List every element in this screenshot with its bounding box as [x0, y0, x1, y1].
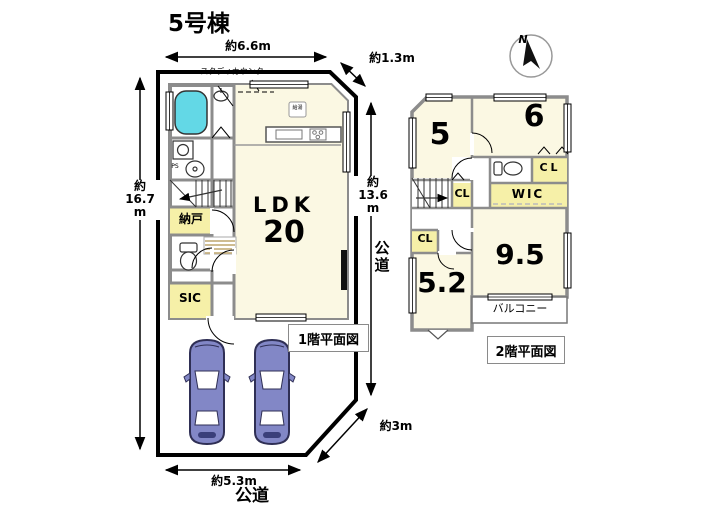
wic-label: WIC [502, 188, 554, 201]
washing-machine-icon [173, 141, 193, 159]
dim-left-label: 約 16.7 m [118, 180, 162, 220]
water-heater-label: 給湯 [289, 106, 306, 112]
study-counter-label: スタディカウンター [198, 68, 274, 77]
road-right-label: 公 道 [368, 240, 396, 273]
cl-a-label: CL [534, 162, 566, 174]
car-2 [249, 340, 295, 444]
floor1-plan-label: 1階平面図 [288, 324, 369, 352]
room95-label: 9.5 [490, 240, 550, 271]
ldk-name-label: LDK [248, 194, 320, 217]
vanity-icon [186, 161, 204, 177]
cl-c-label: CL [412, 233, 438, 245]
toilet-2f-icon [494, 162, 522, 175]
cl-b-label: CL [450, 188, 474, 200]
kitchen-sink [276, 130, 302, 139]
dim-bottom-right-label: 約3m [374, 420, 418, 433]
dim-right-label: 約 13.6 m [352, 176, 394, 216]
room52-label: 5.2 [412, 268, 472, 299]
dim-top-right-label: 約1.3m [366, 52, 418, 65]
sic-label: SIC [172, 292, 208, 305]
balcony-label: バルコニー [486, 303, 554, 315]
floorplan-canvas: 5号棟 約6.6m 約1.3m 約 16.7 m 約 13.6 m 公 道 約5… [0, 0, 705, 525]
room6-label: 6 [514, 100, 554, 133]
ldk-size-label: 20 [254, 216, 314, 249]
floorplan-drawing [0, 0, 705, 525]
bathtub [175, 91, 207, 134]
toilet-1f-icon [180, 243, 197, 270]
compass-north-label: N [516, 34, 530, 46]
road-bottom-label: 公道 [222, 487, 282, 506]
nando-label: 納戸 [172, 213, 210, 226]
car-1 [184, 340, 230, 444]
entrance-hatch [204, 237, 236, 254]
dim-top-label: 約6.6m [208, 40, 288, 53]
floor2-plan-label: 2階平面図 [487, 336, 565, 364]
room5-label: 5 [420, 118, 460, 151]
ps-label: PS [170, 164, 180, 171]
page-title: 5号棟 [168, 12, 230, 37]
